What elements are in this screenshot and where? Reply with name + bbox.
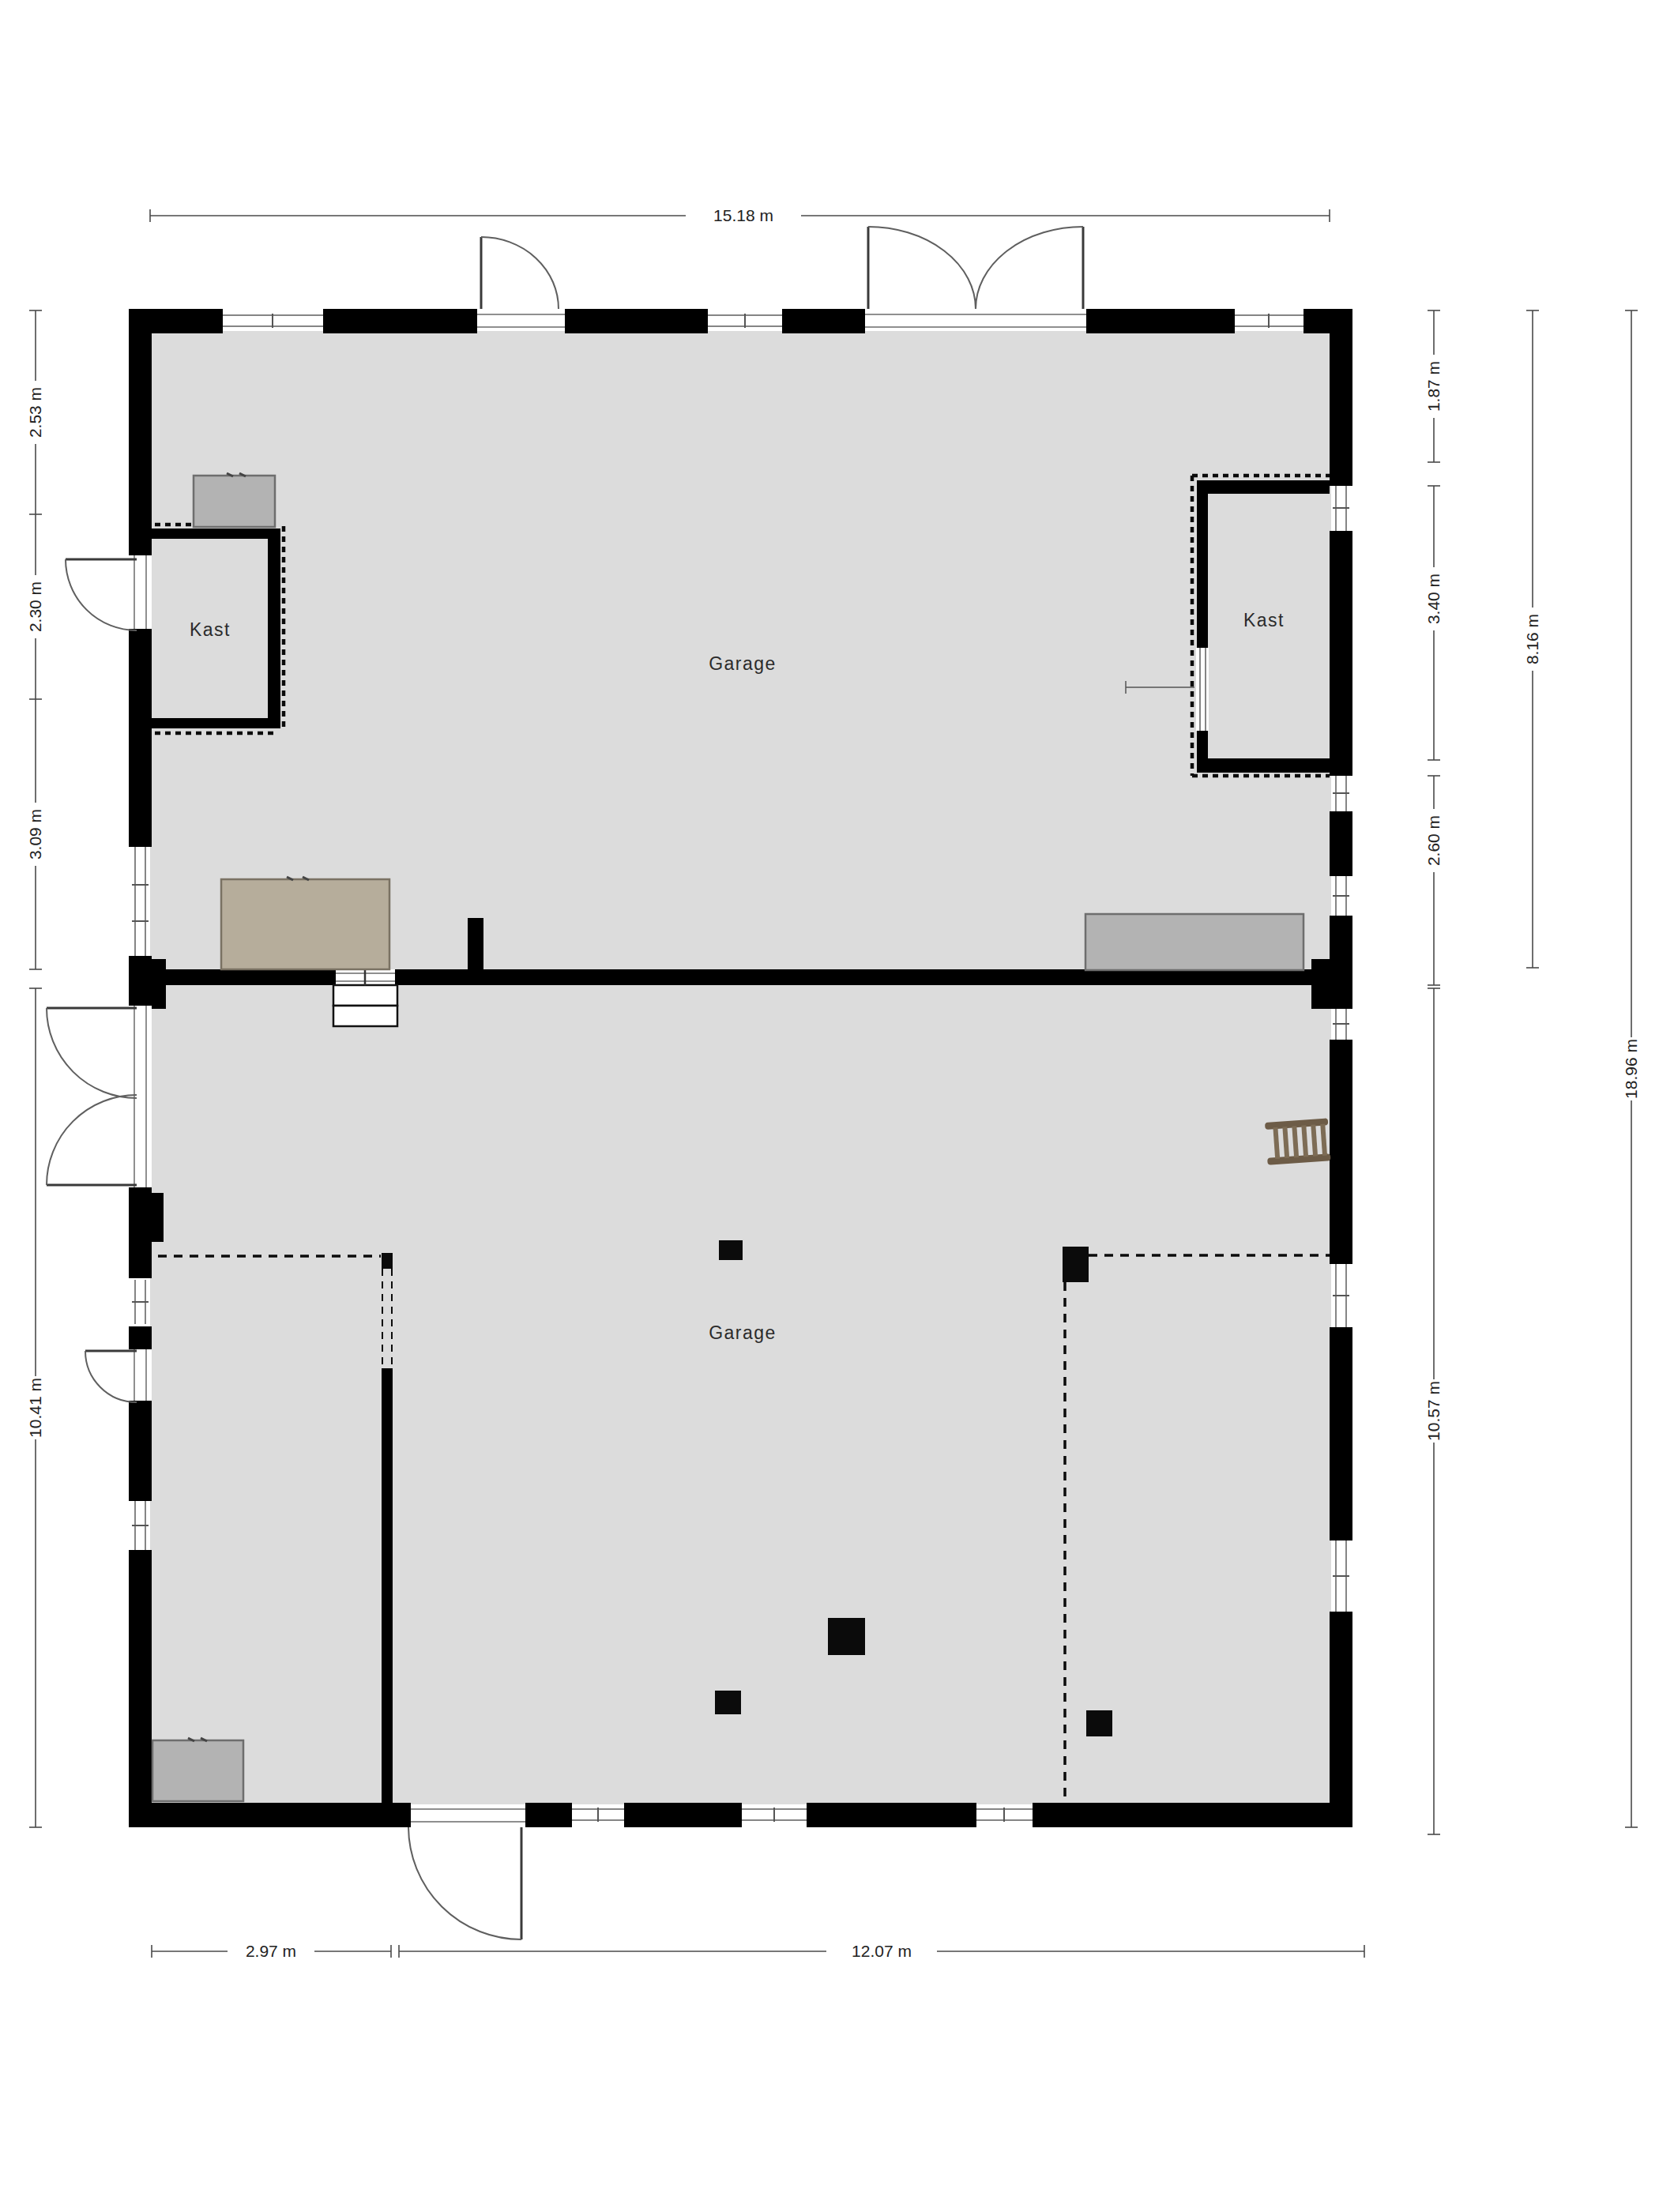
dimension-right-3-40: 3.40 m [1424, 486, 1443, 760]
window [1331, 486, 1351, 531]
window [708, 310, 782, 331]
dimension-far-18-96: 18.96 m [1622, 310, 1640, 1827]
dimension-left-2-53: 2.53 m [26, 310, 44, 514]
door-single-bottom [408, 1804, 525, 1939]
room-label-kast-right: Kast [1243, 610, 1285, 630]
room-label-kast-left: Kast [190, 619, 231, 640]
dimension-top: 15.18 m [150, 206, 1330, 224]
window [1331, 1264, 1351, 1327]
appliance-bottom-left [152, 1738, 243, 1801]
window [130, 847, 150, 956]
window [130, 1280, 150, 1324]
dimension-right-2-60: 2.60 m [1424, 776, 1443, 985]
garage-bottom-floor [150, 978, 1332, 1809]
dimension-label: 3.09 m [26, 809, 44, 860]
window [976, 1804, 1033, 1826]
floor-plan: Garage Kast Kast Garage 15.18 m 2.53 m 2… [0, 0, 1659, 2212]
dimension-bottom-2-97: 2.97 m [152, 1942, 391, 1960]
dimension-label: 2.60 m [1424, 815, 1443, 866]
window [223, 310, 323, 331]
dimension-label: 10.41 m [26, 1378, 44, 1438]
window [742, 1804, 807, 1826]
door-double-left [47, 1006, 152, 1187]
dimension-label: 2.53 m [26, 387, 44, 438]
dimension-label: 3.40 m [1424, 574, 1443, 624]
window [1331, 1540, 1351, 1612]
workbench [221, 877, 389, 969]
dimension-label: 15.18 m [713, 206, 773, 224]
door-single-left [85, 1349, 152, 1402]
dimension-label: 18.96 m [1622, 1039, 1640, 1099]
dimension-left-10-41: 10.41 m [26, 988, 44, 1827]
dimension-far-8-16: 8.16 m [1523, 310, 1541, 968]
appliance-top-left [194, 473, 275, 527]
dimension-left-3-09: 3.09 m [26, 699, 44, 969]
appliance-middle-right [1085, 914, 1303, 970]
dimension-label: 12.07 m [852, 1942, 912, 1960]
dimension-right-10-57: 10.57 m [1424, 988, 1443, 1834]
exterior-wall-bottom [129, 1803, 1352, 1827]
window [1331, 1009, 1351, 1040]
dimension-label: 8.16 m [1523, 614, 1541, 664]
window [572, 1804, 624, 1826]
floor-plan-canvas: Garage Kast Kast Garage 15.18 m 2.53 m 2… [0, 0, 1659, 2212]
dimension-left-2-30: 2.30 m [26, 514, 44, 699]
door-single-top [477, 237, 565, 331]
dimension-label: 2.30 m [26, 581, 44, 632]
dimension-label: 2.97 m [246, 1942, 296, 1960]
door-double-top [865, 227, 1086, 331]
room-label-garage-bottom: Garage [709, 1322, 777, 1343]
window [130, 1501, 150, 1550]
dimension-right-1-87: 1.87 m [1424, 310, 1443, 462]
dimension-label: 10.57 m [1424, 1381, 1443, 1441]
door-kast-left [66, 555, 152, 630]
dimension-bottom-12-07: 12.07 m [399, 1942, 1364, 1960]
room-label-garage-top: Garage [709, 653, 777, 674]
window [1331, 876, 1351, 916]
window [1235, 310, 1303, 331]
dimension-label: 1.87 m [1424, 361, 1443, 412]
window [1331, 776, 1351, 811]
